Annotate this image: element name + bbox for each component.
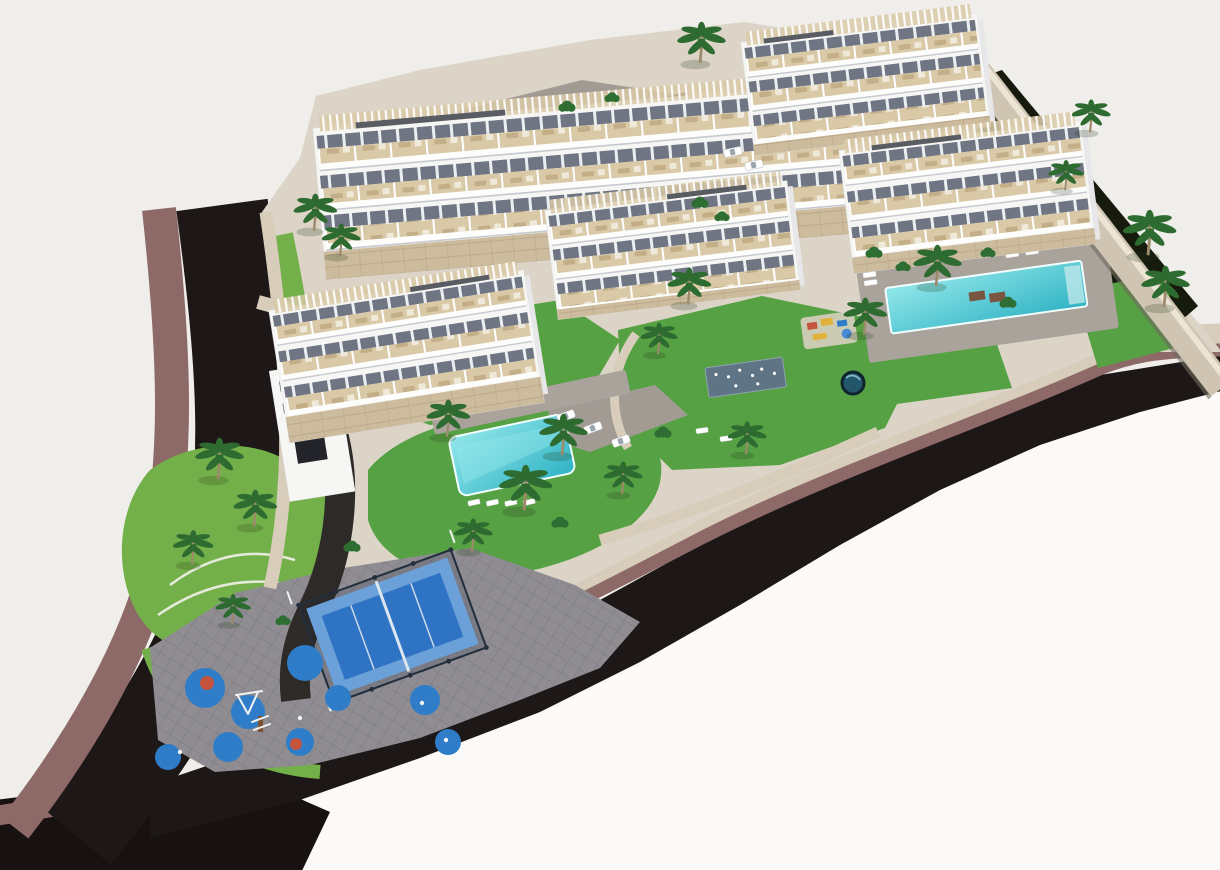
aerial-render-canvas	[0, 0, 1220, 870]
site-render	[0, 0, 1220, 870]
